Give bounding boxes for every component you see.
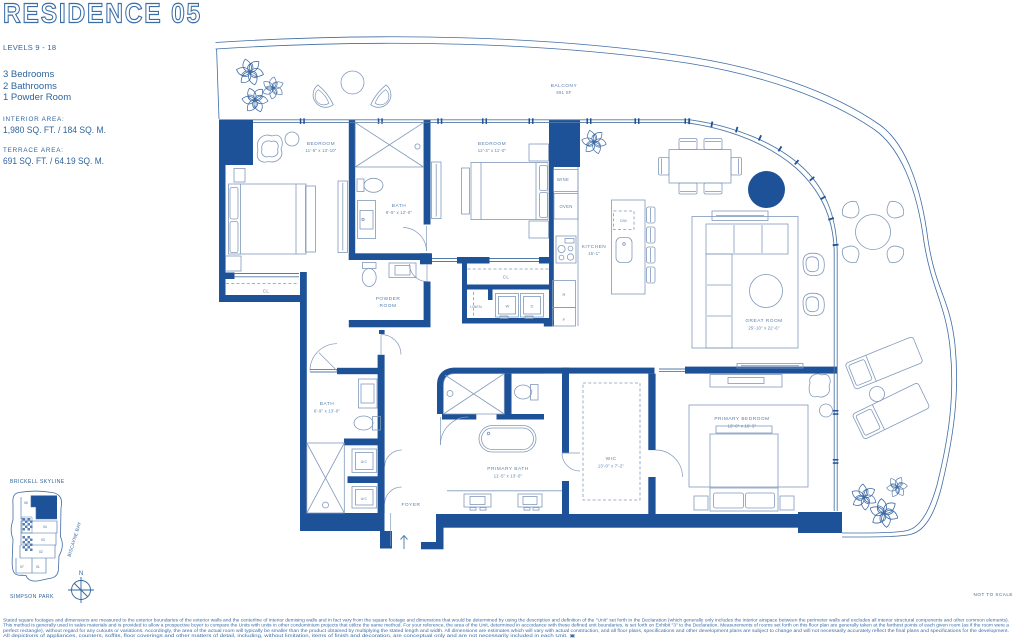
svg-text:A/C: A/C bbox=[361, 497, 368, 501]
svg-text:12'-3" x 11'-0": 12'-3" x 11'-0" bbox=[478, 148, 507, 153]
svg-text:01: 01 bbox=[36, 565, 40, 569]
svg-text:691 SF: 691 SF bbox=[556, 90, 571, 95]
svg-text:13'-0" x 16'-5": 13'-0" x 16'-5" bbox=[728, 424, 757, 429]
svg-text:CL: CL bbox=[263, 289, 270, 294]
svg-text:11'-5" x 13'-0": 11'-5" x 13'-0" bbox=[494, 474, 523, 479]
svg-text:BATH: BATH bbox=[320, 401, 334, 407]
svg-text:07: 07 bbox=[20, 565, 24, 569]
svg-text:PRIMARY BATH: PRIMARY BATH bbox=[487, 466, 528, 472]
svg-text:WINE: WINE bbox=[557, 177, 569, 182]
svg-text:25'-10" x 22'-6": 25'-10" x 22'-6" bbox=[748, 326, 780, 331]
svg-text:691 SQ. FT. / 64.19 SQ. M.: 691 SQ. FT. / 64.19 SQ. M. bbox=[3, 156, 104, 167]
svg-text:11'-5" x 13'-10": 11'-5" x 13'-10" bbox=[306, 148, 337, 153]
svg-text:NOT TO SCALE: NOT TO SCALE bbox=[974, 592, 1013, 597]
svg-text:GREAT ROOM: GREAT ROOM bbox=[745, 318, 782, 324]
svg-text:BATH: BATH bbox=[392, 203, 406, 209]
svg-text:3 Bedrooms: 3 Bedrooms bbox=[3, 69, 54, 80]
svg-text:ROOM: ROOM bbox=[380, 303, 397, 309]
svg-text:F: F bbox=[563, 317, 566, 322]
svg-text:BISCAYNE BAY: BISCAYNE BAY bbox=[67, 521, 83, 558]
svg-text:BEDROOM: BEDROOM bbox=[478, 141, 506, 147]
svg-text:06: 06 bbox=[24, 501, 28, 505]
svg-text:TERRACE AREA:: TERRACE AREA: bbox=[3, 147, 64, 154]
svg-text:6'-9" x 13'-0": 6'-9" x 13'-0" bbox=[314, 409, 341, 414]
svg-text:04: 04 bbox=[43, 525, 47, 529]
svg-text:BRICKELL SKYLINE: BRICKELL SKYLINE bbox=[10, 479, 65, 485]
svg-text:CL: CL bbox=[503, 275, 510, 280]
svg-text:D: D bbox=[530, 304, 533, 309]
svg-text:13'-0" x 7'-2": 13'-0" x 7'-2" bbox=[598, 464, 625, 469]
svg-text:N: N bbox=[79, 571, 83, 577]
svg-text:INTERIOR AREA:: INTERIOR AREA: bbox=[3, 116, 65, 123]
svg-text:W: W bbox=[506, 304, 510, 309]
svg-text:1 Powder Room: 1 Powder Room bbox=[3, 92, 71, 103]
svg-text:FOYER: FOYER bbox=[401, 502, 420, 508]
svg-text:All depictions of appliances,: All depictions of appliances, counters, … bbox=[3, 633, 575, 638]
svg-text:BEDROOM: BEDROOM bbox=[307, 141, 335, 147]
svg-text:6'-5" x 12'-0": 6'-5" x 12'-0" bbox=[386, 210, 413, 215]
svg-text:1,980 SQ. FT. / 184 SQ. M.: 1,980 SQ. FT. / 184 SQ. M. bbox=[3, 125, 106, 136]
svg-text:SIMPSON PARK: SIMPSON PARK bbox=[10, 594, 54, 600]
svg-text:A/C: A/C bbox=[361, 460, 368, 464]
svg-text:BALCONY: BALCONY bbox=[551, 83, 578, 89]
svg-text:LEVELS 9 - 18: LEVELS 9 - 18 bbox=[3, 43, 57, 52]
svg-text:WIC: WIC bbox=[606, 456, 617, 462]
svg-text:POWDER: POWDER bbox=[376, 296, 401, 302]
svg-text:KITCHEN: KITCHEN bbox=[582, 244, 607, 250]
svg-text:03: 03 bbox=[41, 538, 45, 542]
svg-text:PRIMARY BEDROOM: PRIMARY BEDROOM bbox=[714, 416, 769, 422]
svg-text:R: R bbox=[562, 292, 565, 297]
svg-text:2 Bathrooms: 2 Bathrooms bbox=[3, 81, 57, 92]
svg-text:DW: DW bbox=[620, 219, 627, 223]
svg-text:RESIDENCE 05: RESIDENCE 05 bbox=[3, 0, 202, 29]
svg-text:OVEN: OVEN bbox=[559, 204, 572, 209]
svg-text:02: 02 bbox=[39, 550, 43, 554]
svg-text:LINEN: LINEN bbox=[470, 305, 482, 309]
svg-text:15'-1": 15'-1" bbox=[588, 251, 600, 256]
